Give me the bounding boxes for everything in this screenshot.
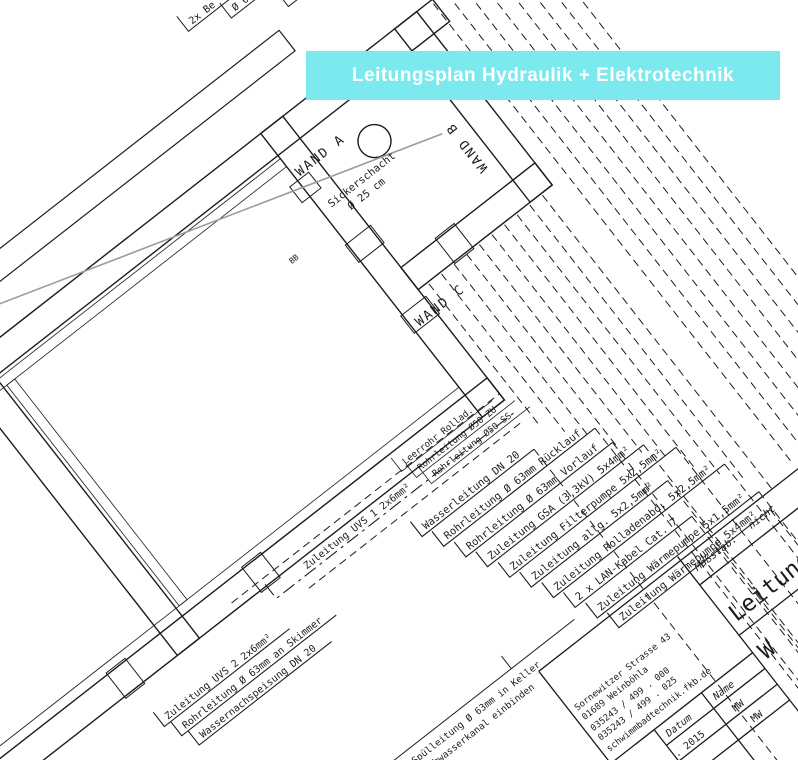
bottom-left-labels: Zuleitung UVS 2 2x6mm² Rohrleitung Ø 63m… [153,587,347,755]
uvs1-label: Zuleitung UVS 1 2x6mm² [302,482,413,572]
bottom-label: Wassernachspeisung DN 20 [198,643,319,741]
outer-shell-wall [0,30,295,537]
pipe-labels: Wasserleitung DN 20 Rohrleitung Ø 63mm R… [420,356,760,685]
top-label: 2x Be [187,0,217,27]
pool-walls [0,0,654,760]
top-label: Ø 63m [230,0,261,14]
wand-b-label: WAND B [443,119,491,175]
wand-c-label: WAND C [413,282,469,330]
leitungsplan-drawing: Wasserleitung DN 20 Rohrleitung Ø 63mm R… [0,0,798,760]
name-cell: MW [749,708,766,725]
title-banner-label: Leitungsplan Hydraulik + Elektrotechnik [352,65,734,87]
doc-title-2: W [754,636,781,665]
keller-note: Spülleitung Ø 63mm in Keller in Abwasser… [368,607,595,760]
plan-page: Wasserleitung DN 20 Rohrleitung Ø 63mm R… [0,0,798,760]
cable-bundle [0,0,798,760]
title-block: Maßstab: nicht Leitungsplan W Sornewitze… [536,132,798,760]
keller-note-line1: Spülleitung Ø 63mm in Keller [410,659,543,760]
title-banner: Leitungsplan Hydraulik + Elektrotechnik [306,51,780,100]
wall-annotations: WAND A WAND B WAND C Sickerschacht Ø 25 … [246,71,545,368]
bottom-label: Rohrleitung Ø 63mm an Skimmer [180,615,325,732]
name-cell: MW [730,698,747,715]
signature-table: Datum Name . 2015 MW MW [659,676,766,760]
wall-marker: BB [287,253,300,266]
